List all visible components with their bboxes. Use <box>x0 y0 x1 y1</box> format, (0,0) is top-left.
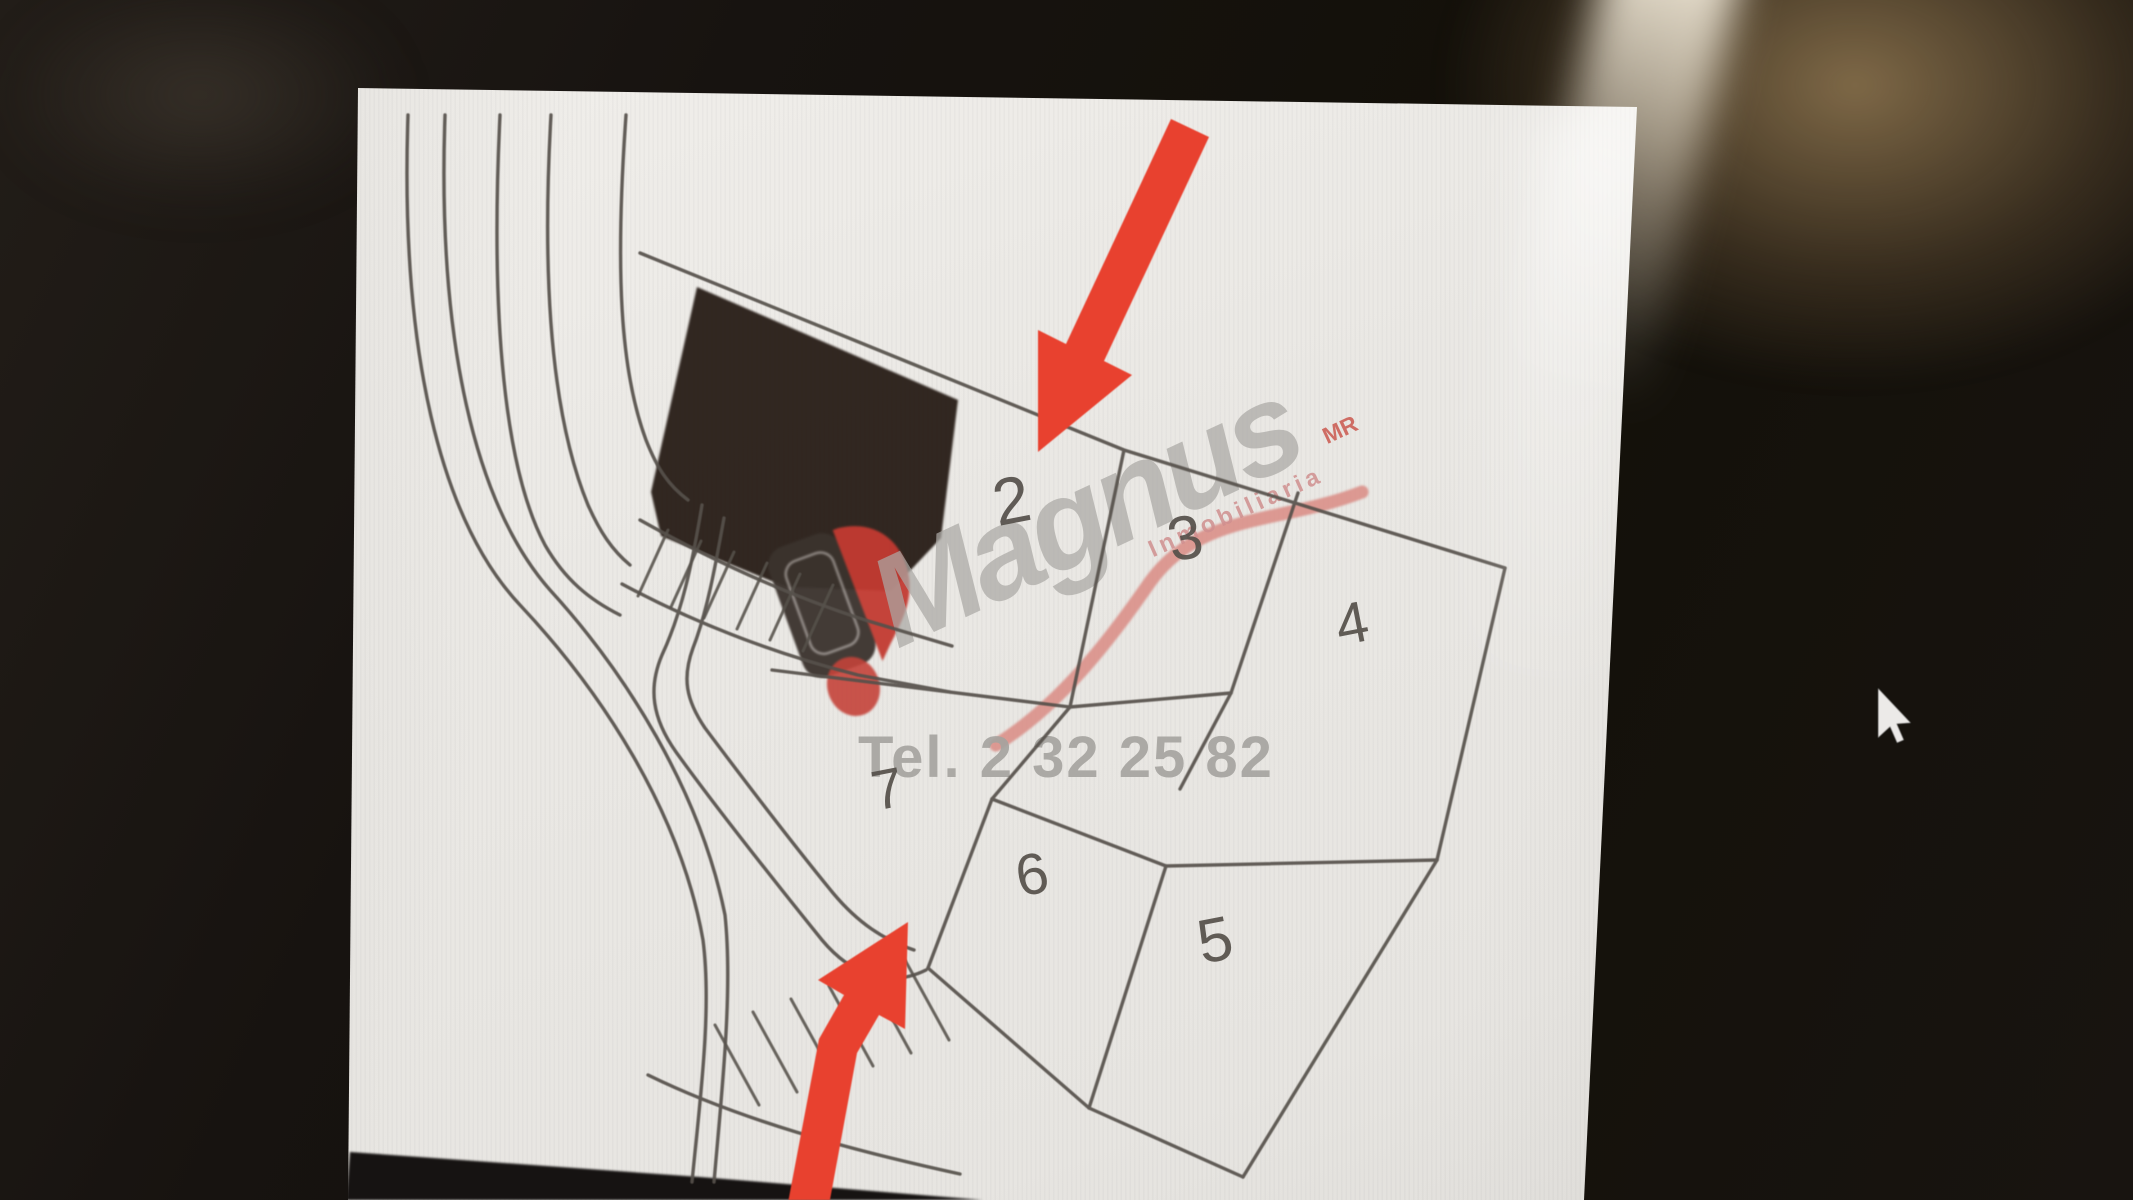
arrow-pointer-icon <box>1878 688 1911 743</box>
monitor-photo: Magnus MR Inmobiliaria Tel. 2 32 25 82 <box>0 0 2133 1200</box>
cursor-layer <box>0 0 2133 1200</box>
